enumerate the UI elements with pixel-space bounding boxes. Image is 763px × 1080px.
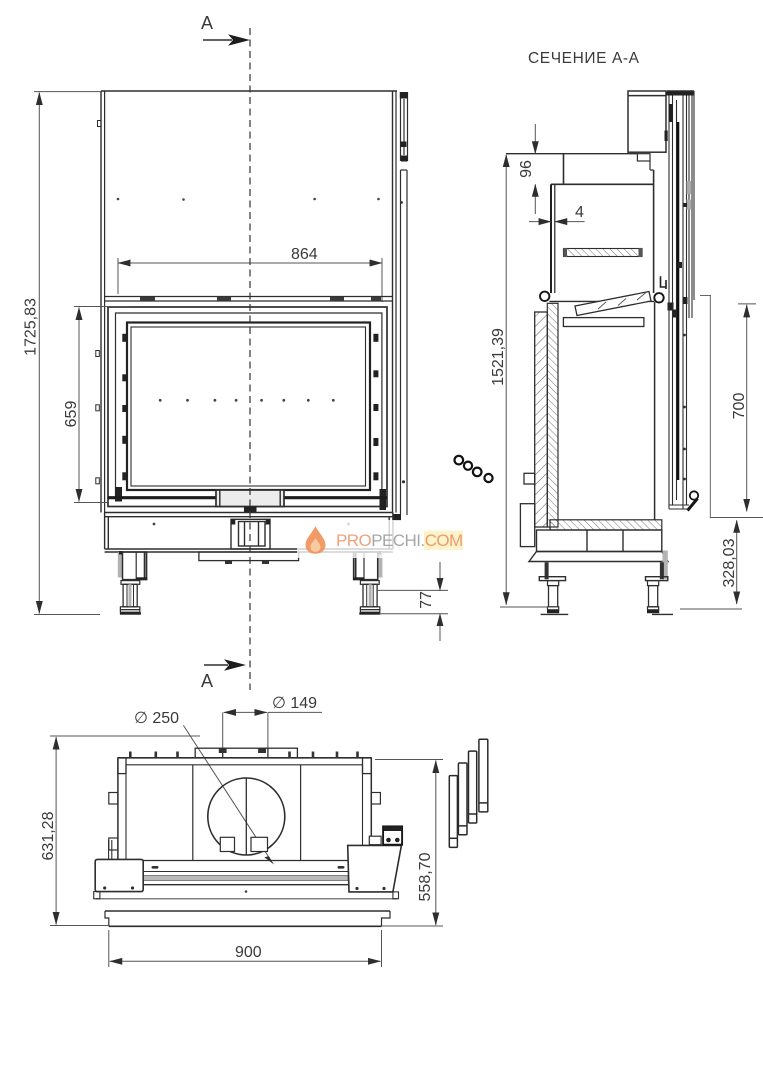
svg-text:1521,39: 1521,39 [490,328,507,386]
svg-text:328,03: 328,03 [721,538,738,587]
svg-text:1725,83: 1725,83 [23,298,40,356]
svg-text:77: 77 [418,591,435,609]
svg-text:96: 96 [518,160,535,178]
svg-text:558,70: 558,70 [417,852,434,901]
svg-text:A: A [201,671,213,691]
svg-text:631,28: 631,28 [40,811,57,860]
svg-text:A: A [201,13,213,33]
svg-text:900: 900 [235,944,262,961]
svg-text:659: 659 [63,401,80,428]
svg-text:∅ 250: ∅ 250 [134,710,179,727]
svg-text:∅ 149: ∅ 149 [272,695,317,712]
svg-text:700: 700 [731,393,748,420]
svg-text:864: 864 [291,246,318,263]
svg-text:4: 4 [575,204,584,221]
svg-text:PROPECHI.COM: PROPECHI.COM [336,531,463,550]
svg-text:СЕЧЕНИЕ А-А: СЕЧЕНИЕ А-А [528,50,640,67]
